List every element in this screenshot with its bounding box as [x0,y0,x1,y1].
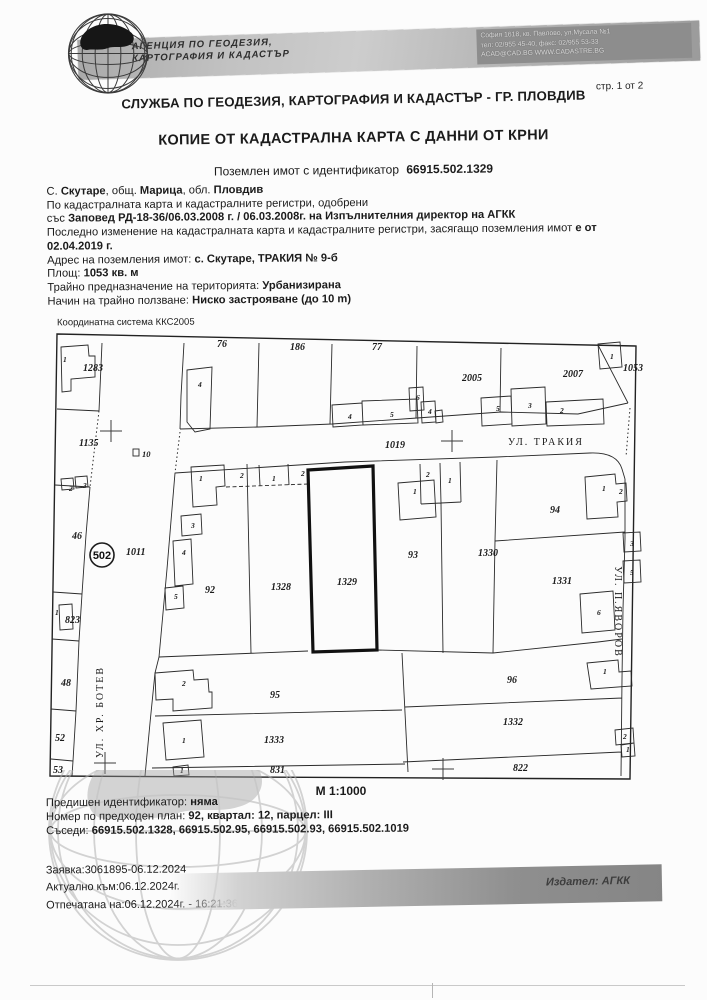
parcel-label: 1331 [552,576,572,587]
building-label: 2 [181,679,186,688]
building-label: 5 [174,592,178,601]
cadastral-document-page: АГЕНЦИЯ ПО ГЕОДЕЗИЯ, КАРТОГРАФИЯ И КАДАС… [0,0,707,1000]
coordinate-system-label: Координатна система ККС2005 [57,317,195,329]
building-label: 1 [626,745,630,754]
utility-annotation: 10 [142,449,151,459]
building-label: 4 [181,548,186,557]
parcel-label: 46 [71,531,82,542]
building-label: 2 [559,406,564,415]
building-label: 1 [413,487,417,496]
building-label: 1 [63,355,67,364]
building-label: 1 [199,474,203,483]
cadastral-map: 502 10 128311354610118234852537618677200… [45,329,645,781]
grid-cross [432,758,454,780]
parcel-label: 2005 [461,373,482,384]
building-label: 5 [390,410,394,419]
document-title: КОПИЕ ОТ КАДАСТРАЛНА КАРТА С ДАННИ ОТ КР… [0,125,707,151]
parcel-label: 1330 [478,548,498,559]
building-label: 6 [416,393,420,402]
building-label: 1 [602,484,606,493]
agency-address: София 1618, кв. Павлово, ул.Мусала №1 те… [476,23,692,65]
utility-symbol [133,449,139,456]
building-label: 4 [347,412,352,421]
parcel-label: 95 [270,690,280,701]
building-label: 4 [427,407,432,416]
parcel-label: 822 [513,763,528,774]
parcel-label: 1053 [623,363,643,374]
parcel-identifier: 66915.502.1329 [406,162,493,177]
identifier-prefix: Поземлен имот с идентификатор [214,163,399,179]
grid-cross [100,420,122,442]
text-line: Съседи: 66915.502.1328, 66915.502.95, 66… [46,821,666,839]
parcel-label: 1011 [126,547,145,558]
building-label: 3 [629,539,634,548]
building-label: 2 [618,487,623,496]
scan-artifact-tick [432,983,433,998]
parcel-label: 48 [60,678,71,689]
building-label: 1 [603,667,607,676]
parcel-label: 77 [372,342,383,353]
parcel-label: 186 [290,342,305,353]
parcel-identifier-line: Поземлен имот с идентификатор 66915.502.… [0,159,707,180]
parcel-label: 52 [55,733,65,744]
parcel-label: 1283 [83,363,103,374]
building-label: 2 [425,470,430,479]
issuer-label: Издател: АГКК [546,875,630,889]
building-label: 2 [300,469,305,478]
building-label: 1 [182,736,186,745]
parcel-label: 1135 [79,438,98,449]
parcel-label: 93 [408,550,418,561]
building-label: 1 [610,352,614,361]
building-label: 6 [597,608,601,617]
header-banner: АГЕНЦИЯ ПО ГЕОДЕЗИЯ, КАРТОГРАФИЯ И КАДАС… [77,20,700,80]
building-label: 5 [630,568,634,577]
dashed-boundaries [226,484,308,487]
parcel-label: 94 [550,505,560,516]
parcel-label: 76 [217,339,227,350]
building-label: 2 [622,732,627,741]
parcel-label: 96 [507,675,517,686]
building-label: 2 [68,484,73,493]
parcel-boundaries [51,343,628,776]
street-label: УЛ. ТРАКИЯ [508,437,584,448]
parcel-label: 1328 [271,582,291,593]
building-label: 1 [55,608,59,617]
parcel-label: 1332 [503,717,523,728]
parcel-label: 1329 [337,577,357,588]
parcel-label: 823 [65,615,80,626]
zone-number: 502 [93,550,111,562]
parcel-label: 1333 [264,735,284,746]
agency-globe-logo [62,6,154,101]
building-label: 3 [190,521,195,530]
grid-cross [441,430,463,452]
street-label: УЛ. ХР. БОТЕВ [95,666,106,758]
footer-info: Предишен идентификатор: нямаНомер по пре… [46,793,666,839]
parcel-label: 2007 [562,369,584,380]
agency-name: АГЕНЦИЯ ПО ГЕОДЕЗИЯ, КАРТОГРАФИЯ И КАДАС… [131,36,290,65]
building-label: 5 [496,404,500,413]
building-label: 2 [239,471,244,480]
building-label: 1 [272,474,276,483]
building-label: 1 [448,476,452,485]
subject-parcel-1329 [308,466,377,652]
street-label: УЛ. П.ЯВОРОВ [612,566,623,658]
building-label: 3 [527,401,532,410]
scan-artifact-line [30,985,685,986]
building-label: 4 [197,380,202,389]
parcel-label: 1019 [385,440,405,451]
parcel-number-labels: 1283113546101182348525376186772005200710… [53,339,643,776]
parcel-label: 92 [205,585,215,596]
zone-circle: 502 [90,543,114,567]
property-info: С. Скутаре, общ. Марица, обл. ПловдивПо … [46,180,677,309]
building-label: 3 [82,481,87,490]
